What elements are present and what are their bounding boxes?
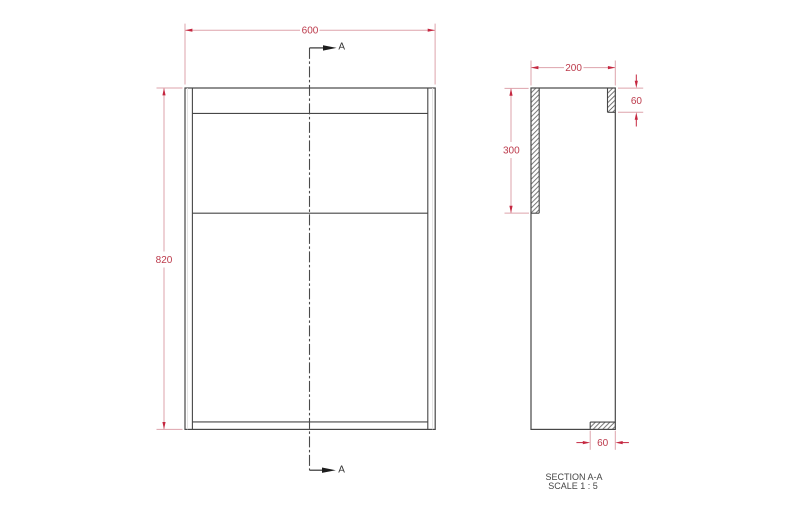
svg-text:60: 60 xyxy=(631,96,643,107)
svg-text:600: 600 xyxy=(302,26,319,37)
svg-text:200: 200 xyxy=(565,63,582,74)
svg-text:A: A xyxy=(338,465,345,476)
svg-text:SCALE 1 : 5: SCALE 1 : 5 xyxy=(548,481,598,491)
svg-text:60: 60 xyxy=(597,438,609,449)
svg-text:300: 300 xyxy=(503,146,520,157)
svg-text:A: A xyxy=(338,42,345,53)
svg-text:820: 820 xyxy=(156,255,173,266)
